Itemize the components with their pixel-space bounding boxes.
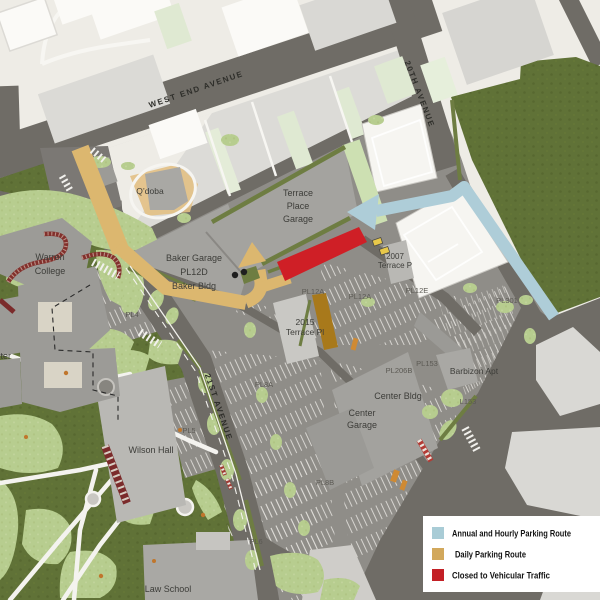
svg-text:Place: Place (287, 201, 310, 211)
svg-text:Center: Center (348, 408, 375, 418)
svg-text:Terrace: Terrace (283, 188, 313, 198)
svg-text:Closed to Vehicular Traffic: Closed to Vehicular Traffic (452, 571, 550, 581)
svg-text:Center Bldg: Center Bldg (374, 391, 422, 401)
svg-text:Warren: Warren (35, 252, 64, 262)
svg-text:College: College (35, 266, 66, 276)
svg-text:Terrace P: Terrace P (378, 261, 412, 270)
svg-text:PL8B: PL8B (316, 478, 334, 487)
svg-text:2007: 2007 (386, 252, 404, 261)
svg-text:PL153: PL153 (416, 359, 438, 368)
svg-text:Law School: Law School (145, 584, 192, 594)
svg-text:Terrace Pl: Terrace Pl (286, 327, 324, 337)
svg-text:Wilson Hall: Wilson Hall (128, 445, 173, 455)
svg-text:Baker Bldg: Baker Bldg (172, 281, 216, 291)
svg-text:L153: L153 (460, 397, 477, 406)
svg-text:PL6: PL6 (249, 537, 262, 546)
svg-text:Q’doba: Q’doba (136, 186, 164, 196)
svg-text:PL12E: PL12E (406, 286, 429, 295)
svg-text:PL8A: PL8A (255, 380, 273, 389)
svg-text:PL301: PL301 (496, 296, 518, 305)
svg-text:Baker Garage: Baker Garage (166, 253, 222, 263)
svg-text:Annual and Hourly Parking Rout: Annual and Hourly Parking Route (452, 529, 571, 539)
svg-text:PL206B: PL206B (386, 366, 413, 375)
svg-text:PL4: PL4 (125, 310, 138, 319)
svg-text:Daily Parking Route: Daily Parking Route (455, 550, 526, 560)
svg-text:PL12A: PL12A (349, 292, 372, 301)
svg-text:Center: Center (0, 351, 11, 361)
svg-text:PL12D: PL12D (180, 267, 208, 277)
svg-text:Garage: Garage (347, 420, 377, 430)
svg-text:PL5: PL5 (182, 426, 195, 435)
svg-text:Garage: Garage (283, 214, 313, 224)
svg-text:2015: 2015 (296, 317, 315, 327)
svg-text:PL12A: PL12A (302, 287, 325, 296)
svg-text:Barbizon Apt: Barbizon Apt (450, 366, 499, 376)
